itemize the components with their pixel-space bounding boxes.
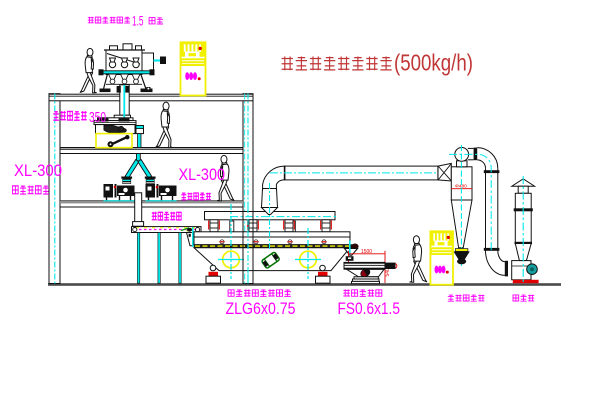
svg-text:(500kg/h): (500kg/h) bbox=[394, 50, 473, 76]
svg-text:XL-300: XL-300 bbox=[179, 165, 226, 184]
svg-text:ZLG6x0.75: ZLG6x0.75 bbox=[226, 299, 296, 318]
svg-text:XL-300: XL-300 bbox=[14, 161, 62, 180]
svg-text:350: 350 bbox=[89, 109, 106, 126]
svg-text:FS0.6x1.5: FS0.6x1.5 bbox=[338, 299, 401, 318]
svg-text:540: 540 bbox=[385, 268, 391, 277]
svg-text:1.5: 1.5 bbox=[132, 13, 144, 29]
svg-text:1500: 1500 bbox=[361, 249, 372, 255]
